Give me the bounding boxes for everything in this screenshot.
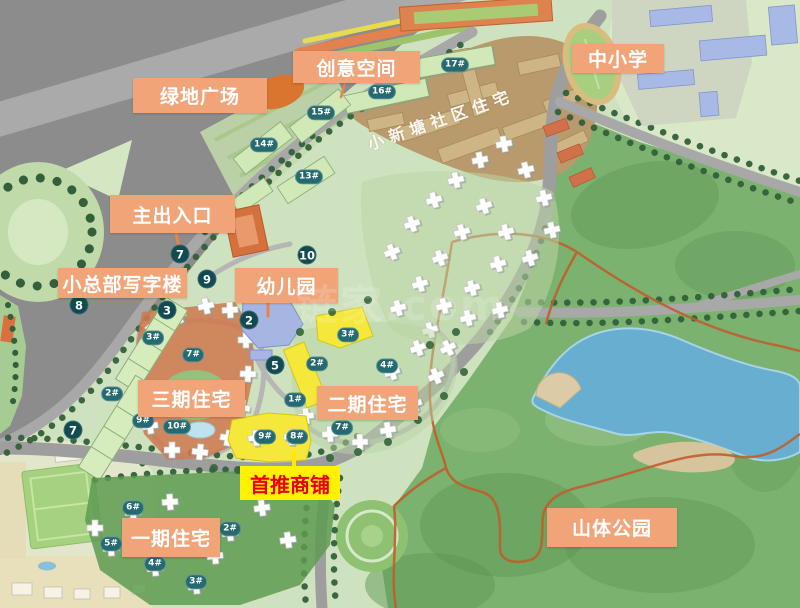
label-kindergarten: 幼儿园 — [235, 268, 338, 303]
building-number-badge: 2# — [306, 356, 328, 371]
building-number-badge: 15# — [307, 105, 335, 120]
route-marker: 7 — [64, 421, 83, 440]
building-number-badge: 4# — [144, 556, 166, 571]
label-green-plaza: 绿地广场 — [133, 78, 267, 113]
building-number-badge: 14# — [250, 137, 278, 152]
building-number-badge: 6# — [122, 500, 144, 515]
label-main-entrance: 主出入口 — [110, 195, 235, 233]
label-hq-office: 小总部写字楼 — [58, 268, 187, 298]
circular-lawn — [336, 500, 408, 572]
route-marker: 10 — [298, 246, 317, 265]
label-phase-2: 二期住宅 — [317, 386, 418, 420]
route-marker: 7 — [171, 245, 190, 264]
label-primary-middle-school: 中小学 — [572, 44, 664, 73]
site-plan-map: 小新塘社区住宅 创意空间绿地广场中小学主出入口小总部写字楼幼儿园三期住宅二期住宅… — [0, 0, 800, 608]
building-number-badge: 3# — [142, 330, 164, 345]
building-number-badge: 7# — [182, 347, 204, 362]
map-artwork — [0, 0, 800, 608]
building-number-badge: 7# — [331, 420, 353, 435]
building-number-badge: 9# — [254, 429, 276, 444]
building-number-badge: 13# — [295, 169, 323, 184]
featured-shops-label: 首推商铺 — [240, 466, 340, 500]
route-marker: 2 — [240, 311, 259, 330]
label-creative-space: 创意空间 — [293, 51, 420, 83]
building-number-badge: 4# — [376, 358, 398, 373]
building-number-badge: 10# — [163, 419, 191, 434]
building-number-badge: 2# — [219, 521, 241, 536]
building-number-badge: 3# — [337, 327, 359, 342]
building-number-badge: 8# — [286, 429, 308, 444]
building-number-badge: 2# — [101, 386, 123, 401]
route-marker: 3 — [158, 301, 177, 320]
building-number-badge: 3# — [185, 574, 207, 589]
label-phase-3: 三期住宅 — [138, 380, 245, 417]
label-phase-1: 一期住宅 — [122, 518, 220, 557]
route-marker: 8 — [70, 296, 89, 315]
building-number-badge: 5# — [100, 536, 122, 551]
building-number-badge: 1# — [284, 392, 306, 407]
route-marker: 5 — [266, 356, 285, 375]
building-number-badge: 16# — [368, 84, 396, 99]
building-number-badge: 17# — [441, 57, 469, 72]
label-mountain-park: 山体公园 — [547, 508, 677, 547]
route-marker: 9 — [198, 270, 217, 289]
